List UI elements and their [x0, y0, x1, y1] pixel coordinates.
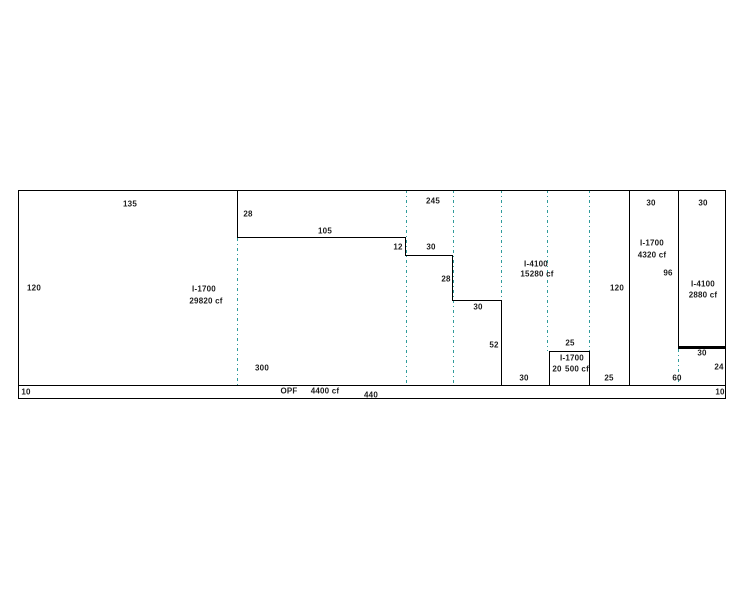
dim-label-r4-30: 30 — [698, 199, 707, 208]
region3-name-label: I-1700 — [640, 239, 664, 248]
outer-boundary-top — [18, 190, 726, 191]
dim-label-step-30b: 30 — [473, 303, 482, 312]
dim-label-top-245: 245 — [426, 197, 440, 206]
region-boundary — [678, 190, 679, 347]
outer-boundary-left — [18, 190, 19, 399]
region-boundary — [237, 190, 238, 238]
dim-label-box-25: 25 — [565, 339, 574, 348]
region1-name-label: I-1700 — [192, 285, 216, 294]
dim-label-step-30: 30 — [426, 243, 435, 252]
dim-label-bottom-60: 60 — [672, 374, 681, 383]
dim-label-step-52: 52 — [489, 341, 498, 350]
region2-name-label: I-4100 — [524, 260, 548, 269]
dim-label-left-120: 120 — [27, 284, 41, 293]
dim-label-top-135: 135 — [123, 200, 137, 209]
dim-label-step-28b: 28 — [441, 275, 450, 284]
region-boundary — [501, 300, 502, 385]
dim-label-right-120: 120 — [610, 284, 624, 293]
drawing-canvas: 135 120 I-1700 29820 cf 300 28 105 12 30… — [0, 0, 746, 595]
dim-label-step-28: 28 — [243, 210, 252, 219]
dim-label-lower-24: 24 — [714, 363, 723, 372]
storage-box-volume-label: 500 cf — [565, 365, 589, 374]
opf-volume-label: 4400 cf — [311, 387, 340, 396]
region-boundary — [237, 237, 406, 238]
region4-name-label: I-4100 — [691, 280, 715, 289]
storage-box-name-label: I-1700 — [560, 354, 584, 363]
dim-label-r3-30: 30 — [646, 199, 655, 208]
dim-label-step-105: 105 — [318, 227, 332, 236]
dim-label-bottom-30: 30 — [519, 374, 528, 383]
drainage-divide-line — [237, 238, 238, 385]
dim-label-strip-10-right: 10 — [715, 388, 724, 397]
outer-boundary-right — [725, 190, 726, 399]
storage-box-right — [589, 351, 590, 385]
dim-label-box-20: 20 — [552, 365, 561, 374]
dim-label-bottom-300: 300 — [255, 364, 269, 373]
region-boundary — [405, 237, 406, 256]
region3-volume-label: 4320 cf — [638, 251, 667, 260]
region4-volume-label: 2880 cf — [689, 291, 718, 300]
dim-label-step-12: 12 — [393, 243, 402, 252]
region-boundary — [405, 255, 453, 256]
dim-label-strip-10-left: 10 — [21, 388, 30, 397]
region-boundary — [629, 190, 630, 385]
region2-volume-label: 15280 cf — [520, 270, 553, 279]
region-boundary — [452, 255, 453, 301]
drainage-divide-line — [406, 190, 407, 385]
opf-strip-top-line — [18, 385, 726, 386]
dim-label-strip-440: 440 — [364, 391, 378, 400]
dim-label-96: 96 — [663, 269, 672, 278]
opf-label: OPF — [280, 387, 297, 396]
drainage-divide-line — [589, 190, 590, 351]
region-boundary — [452, 300, 502, 301]
drainage-divide-line — [453, 190, 454, 385]
storage-box-top — [549, 351, 590, 352]
dim-label-lower-30: 30 — [697, 349, 706, 358]
storage-box-left — [549, 351, 550, 385]
dim-label-bottom-25: 25 — [604, 374, 613, 383]
drainage-divide-line — [501, 190, 502, 300]
region1-volume-label: 29820 cf — [189, 297, 222, 306]
